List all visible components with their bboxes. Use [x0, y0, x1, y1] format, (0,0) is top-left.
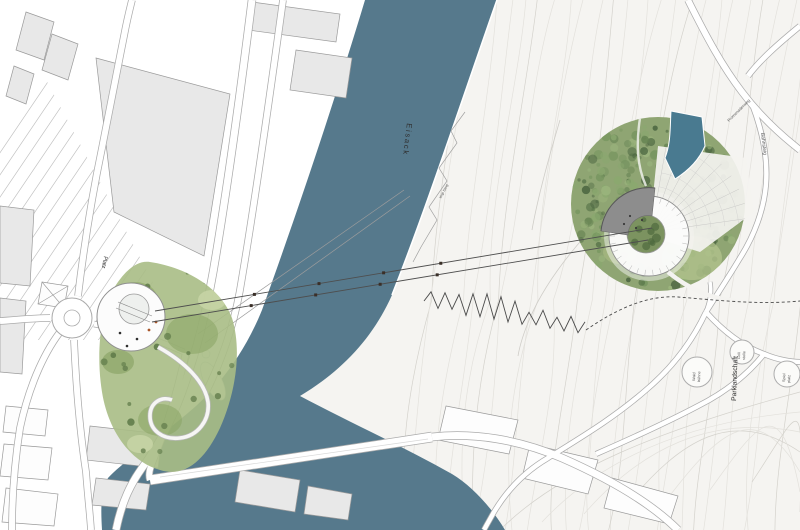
building-block — [6, 66, 34, 104]
grillstelle-label: Grill stelle — [737, 351, 746, 360]
roundabout — [52, 298, 92, 338]
waldbuehne-label: Wald bühne — [692, 371, 701, 382]
svg-text:bühne: bühne — [697, 371, 701, 382]
svg-text:Spiel: Spiel — [782, 373, 786, 382]
building-block — [248, 2, 340, 42]
building-block — [0, 206, 34, 286]
building-outline — [0, 444, 52, 480]
svg-text:Grill: Grill — [737, 352, 741, 359]
building-block — [0, 298, 26, 374]
plaza-label: Platz — [100, 256, 108, 269]
svg-text:platz: platz — [787, 375, 791, 383]
svg-text:stelle: stelle — [742, 351, 746, 360]
map-canvas: Eisack Platz Parklandschaft Promenadenwe… — [0, 0, 800, 530]
building-block — [290, 50, 352, 98]
site-plan-map: Eisack Platz Parklandschaft Promenadenwe… — [0, 0, 800, 530]
svg-text:Wald: Wald — [692, 372, 696, 381]
